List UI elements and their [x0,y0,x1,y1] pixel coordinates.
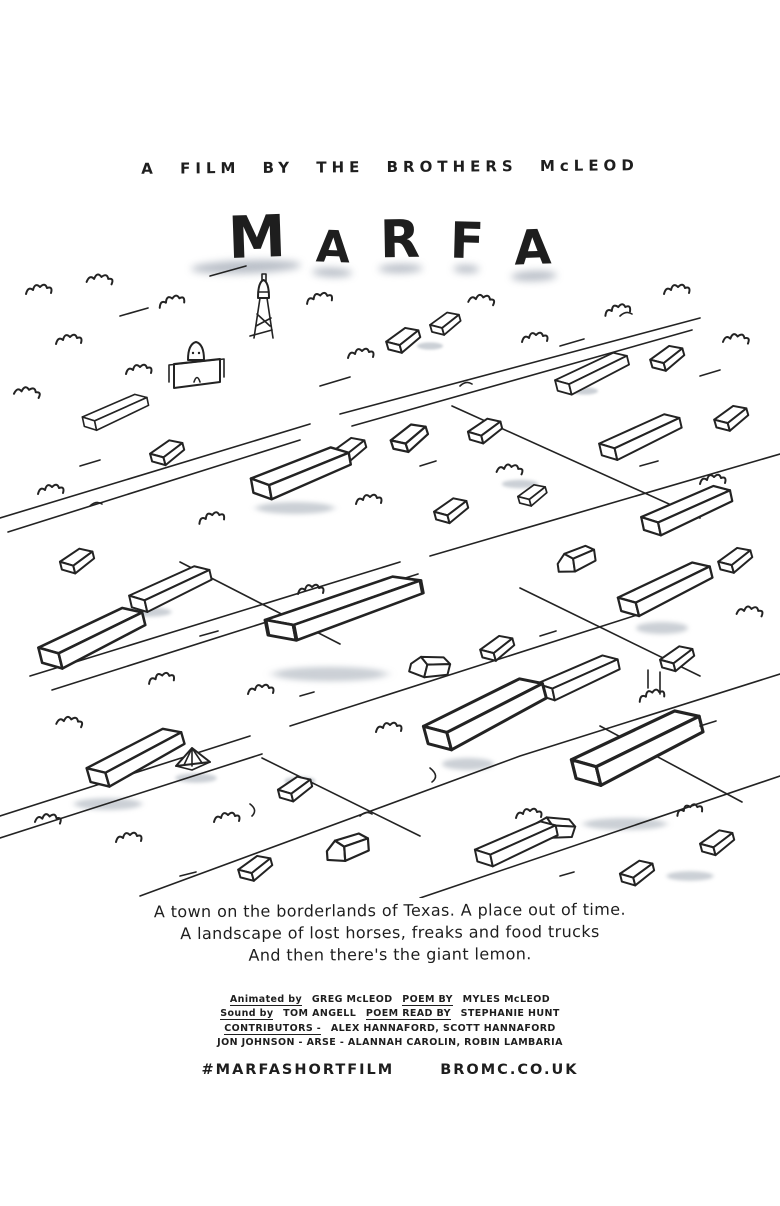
credits-line: JON JOHNSON - ARSE - ALANNAH CAROLIN, RO… [0,1036,780,1050]
byline: A FILM BY THE BROTHERS McLEOD [0,155,780,178]
credit-label: CONTRIBUTORS - [224,1023,321,1035]
tagline-line: And then there's the giant lemon. [0,942,780,968]
water-tower [254,274,273,338]
credit-name: GREG McLEOD [312,994,393,1005]
website: BROMC.CO.UK [440,1062,578,1078]
town-illustration [0,256,780,898]
hashtag: #MARFASHORTFILM [201,1062,394,1078]
credits-line: CONTRIBUTORS - ALEX HANNAFORD, SCOTT HAN… [0,1022,780,1036]
credit-label: POEM BY [402,994,453,1006]
credits-line: Animated by GREG McLEOD POEM BY MYLES Mc… [0,993,780,1007]
credit-label: Animated by [230,994,302,1006]
credit-label: POEM READ BY [366,1008,451,1020]
tagline: A town on the borderlands of Texas. A pl… [0,898,780,968]
credit-name: ALEX HANNAFORD, SCOTT HANNAFORD [331,1023,556,1034]
credit-name: MYLES McLEOD [463,994,550,1005]
credit-name: STEPHANIE HUNT [461,1008,560,1019]
watercolour-washes [74,342,713,880]
poster-title: M A R F A [0,192,780,266]
credit-name: JON JOHNSON - ARSE - ALANNAH CAROLIN, RO… [217,1037,563,1048]
church [169,342,224,388]
footer: #MARFASHORTFILM BROMC.CO.UK [0,1062,780,1078]
credit-label: Sound by [220,1008,273,1020]
marfa-poster: A FILM BY THE BROTHERS McLEOD M A R F A [0,0,780,1206]
credits-line: Sound by TOM ANGELL POEM READ BY STEPHAN… [0,1007,780,1021]
credits-block: Animated by GREG McLEOD POEM BY MYLES Mc… [0,993,780,1050]
credit-name: TOM ANGELL [283,1008,356,1019]
